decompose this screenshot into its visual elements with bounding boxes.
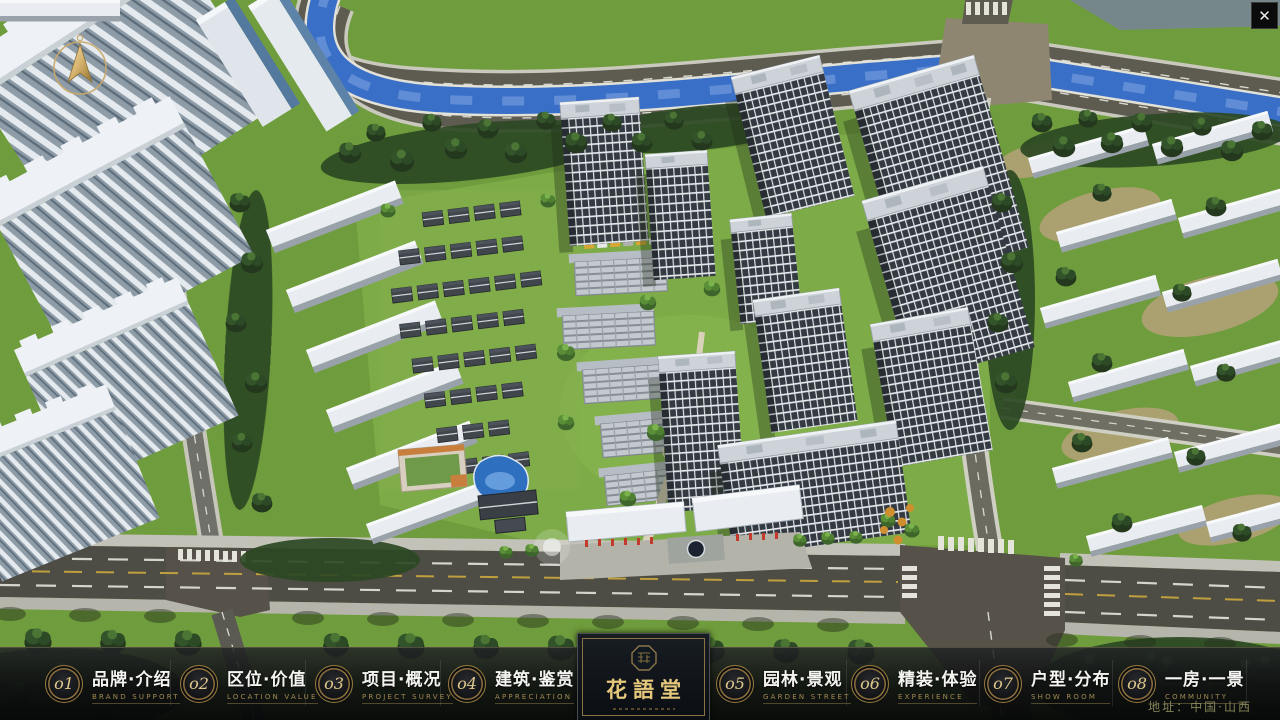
close-button[interactable]: ✕	[1251, 2, 1278, 29]
nav-label-en: LOCATION VALUE	[227, 693, 318, 704]
project-logo-title: 花語堂	[600, 674, 687, 704]
nav-item-brand-intro[interactable]: o1 品牌·介绍 BRAND SUPPORT	[45, 659, 180, 709]
nav-label-zh: 园林·景观	[763, 665, 851, 690]
nav-item-floorplans[interactable]: o7 户型·分布 SHOW ROOM	[984, 659, 1110, 709]
nav-label-zh: 项目·概况	[362, 665, 453, 690]
nav-label-zh: 区位·价值	[227, 665, 318, 690]
bottom-nav-bar: o1 品牌·介绍 BRAND SUPPORT o2 区位·价值 LOCATION…	[0, 647, 1280, 720]
nav-number-badge: o2	[180, 665, 218, 703]
logo-panel[interactable]: 花語堂	[577, 633, 710, 720]
nav-label-en: PROJECT SURVEY	[362, 693, 453, 704]
nav-number-badge: o3	[315, 665, 353, 703]
nav-separator	[1112, 660, 1113, 706]
nav-label-en: APPRECIATION	[495, 693, 574, 704]
nav-label-zh: 品牌·介绍	[92, 665, 180, 690]
close-icon: ✕	[1258, 7, 1271, 25]
nav-item-architecture[interactable]: o4 建筑·鉴赏 APPRECIATION	[448, 659, 574, 709]
seal-icon	[630, 644, 658, 672]
masterplan-3d-view[interactable]	[0, 0, 1280, 720]
sales-presentation-window: ✕ o1 品牌·介绍 BRAND SUPPORT o2 区位·价值 LOCATI…	[0, 0, 1280, 720]
logo-subtitle-rule	[613, 708, 675, 710]
nav-number-badge: o5	[716, 665, 754, 703]
nav-number-badge: o7	[984, 665, 1022, 703]
nav-item-location-value[interactable]: o2 区位·价值 LOCATION VALUE	[180, 659, 318, 709]
nav-separator	[979, 660, 980, 706]
nav-label-en: BRAND SUPPORT	[92, 693, 180, 704]
nav-number-badge: o6	[851, 665, 889, 703]
nav-label-zh: 精装·体验	[898, 665, 977, 690]
nav-number-badge: o4	[448, 665, 486, 703]
nav-item-interior-experience[interactable]: o6 精装·体验 EXPERIENCE	[851, 659, 977, 709]
nav-label-en: GARDEN STREET	[763, 693, 851, 704]
nav-label-zh: 户型·分布	[1031, 665, 1110, 690]
nav-label-en: SHOW ROOM	[1031, 693, 1110, 704]
nav-number-badge: o1	[45, 665, 83, 703]
address-text: 地址：中国·山西	[1148, 698, 1252, 715]
nav-item-landscape[interactable]: o5 园林·景观 GARDEN STREET	[716, 659, 851, 709]
nav-item-project-overview[interactable]: o3 项目·概况 PROJECT SURVEY	[315, 659, 453, 709]
nav-label-zh: 建筑·鉴赏	[495, 665, 574, 690]
nav-label-zh: 一房·一景	[1165, 665, 1244, 690]
nav-label-en: EXPERIENCE	[898, 693, 977, 704]
